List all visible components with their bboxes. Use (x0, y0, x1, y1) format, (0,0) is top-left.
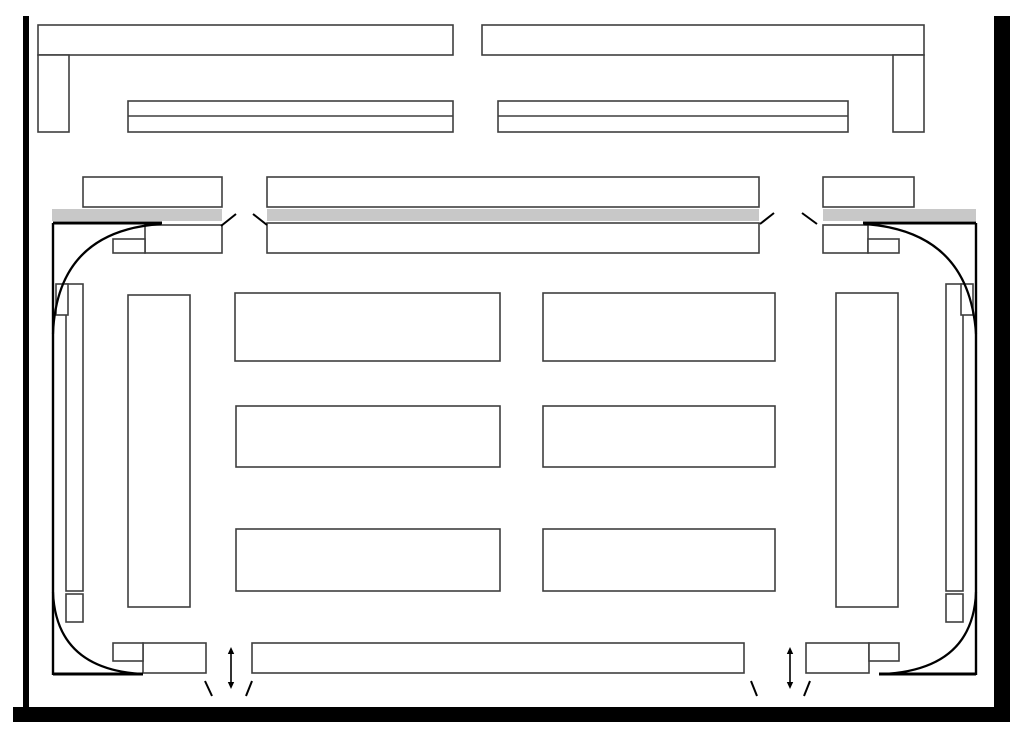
platform-strip-left (52, 209, 222, 221)
break-mark-top-right-a (760, 213, 774, 224)
lower-box-left (145, 225, 222, 253)
left-end-box (66, 594, 83, 622)
break-mark-top-left-b (253, 214, 267, 225)
right-end-box (946, 594, 963, 622)
platform-strip-right (823, 209, 976, 221)
platform-strip-center (267, 209, 759, 221)
grid-box-row3-right (543, 529, 775, 591)
right-tall-rect (836, 293, 898, 607)
bottom-left-sub (113, 643, 143, 661)
frame-border-bottom (13, 707, 1010, 722)
grid-box-row2-left (236, 406, 500, 467)
break-mark-top-left-a (221, 214, 236, 226)
break-mark-bottom-right-b (804, 681, 810, 696)
upper-box-right (823, 177, 914, 207)
frame-border-right (994, 16, 1010, 722)
lower-box-right (823, 225, 868, 253)
top-bars (38, 25, 924, 132)
frame-border-left (23, 16, 29, 722)
lower-box-right-sub (868, 239, 899, 253)
platform-row (52, 177, 976, 253)
left-tall-rect (128, 295, 190, 607)
lower-box-center (267, 223, 759, 253)
top-right-leg (893, 55, 924, 132)
top-right-bar (482, 25, 924, 55)
grid-box-row1-right (543, 293, 775, 361)
break-mark-top-right-b (802, 213, 817, 224)
upper-box-left (83, 177, 222, 207)
lower-box-left-sub (113, 239, 145, 253)
break-mark-bottom-right-a (751, 681, 757, 696)
bottom-right-box (806, 643, 869, 673)
slide-canvas (0, 0, 1022, 729)
break-mark-bottom-left-a (205, 681, 212, 696)
top-left-bar (38, 25, 453, 55)
clearance-arrow-right (787, 647, 793, 689)
center-grid (235, 293, 775, 591)
grid-box-row3-left (236, 529, 500, 591)
break-mark-bottom-left-b (246, 681, 252, 696)
clearance-arrow-left (228, 647, 234, 689)
bottom-left-box (143, 643, 206, 673)
right-narrow-rect (946, 284, 963, 591)
side-columns (56, 284, 973, 622)
left-narrow-rect (66, 284, 83, 591)
bottom-row (113, 643, 899, 696)
grid-box-row1-left (235, 293, 500, 361)
bottom-bar (252, 643, 744, 673)
top-left-leg (38, 55, 69, 132)
schematic-diagram (0, 0, 1022, 729)
upper-box-center (267, 177, 759, 207)
grid-box-row2-right (543, 406, 775, 467)
bottom-right-sub (869, 643, 899, 661)
